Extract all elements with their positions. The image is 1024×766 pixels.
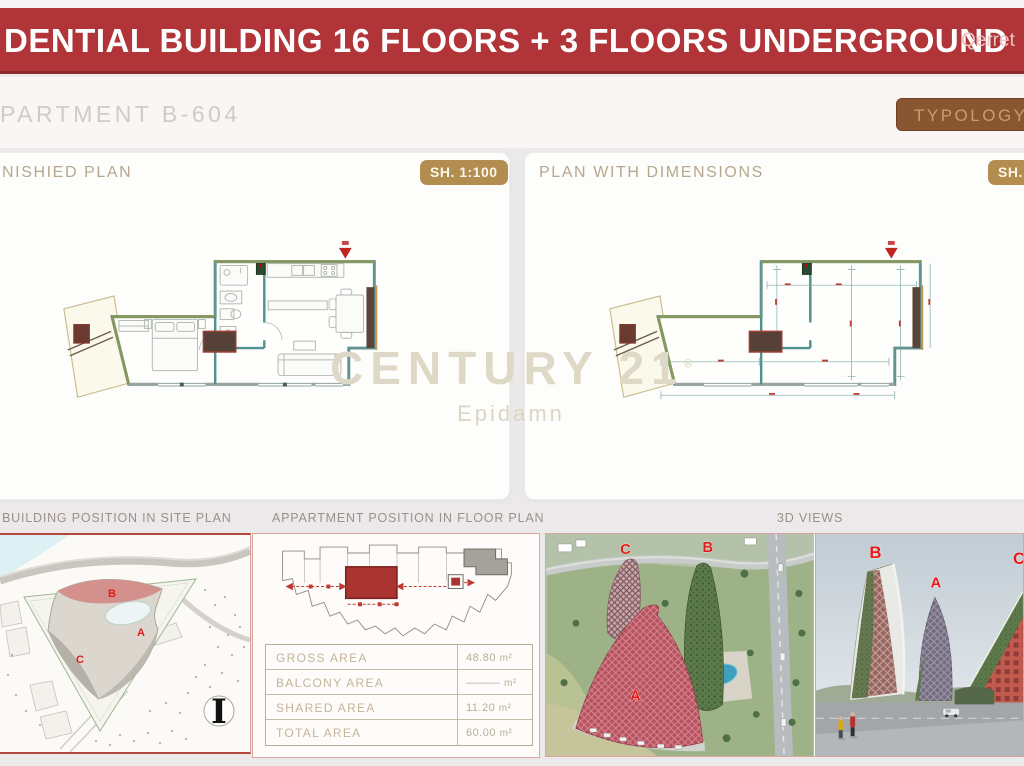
street-label-a: A xyxy=(930,576,941,592)
street-label-b: B xyxy=(869,543,881,562)
scale-badge-dimensioned: SH. xyxy=(988,160,1024,185)
aerial-label-c: C xyxy=(620,542,631,558)
area-row-value: ——— m² xyxy=(458,670,532,694)
table-row: SHARED AREA 11.20 m² xyxy=(266,695,532,720)
aerial-label-b: B xyxy=(702,540,713,556)
presentation-slide: DENTIAL BUILDING 16 FLOORS + 3 FLOORS UN… xyxy=(0,0,1024,766)
typology-badge: TYPOLOGY 1 xyxy=(896,98,1024,131)
site-plan-section-title: BUILDING POSITION IN SITE PLAN xyxy=(2,511,232,525)
area-row-label: SHARED AREA xyxy=(266,695,458,719)
site-label-b: B xyxy=(108,588,116,600)
site-label-a: A xyxy=(137,627,145,639)
site-plan-drawing: B A C I xyxy=(0,535,250,752)
svg-text:I: I xyxy=(211,692,227,732)
table-row: GROSS AREA 48.80 m² xyxy=(266,645,532,670)
dimensioned-plan-title: PLAN WITH DIMENSIONS xyxy=(539,164,764,182)
top-margin-strip xyxy=(0,0,1024,8)
floor-position-section-title: APPARTMENT POSITION IN FLOOR PLAN xyxy=(272,511,544,525)
street-view-panel: B A C xyxy=(815,533,1024,757)
site-label-c: C xyxy=(76,654,84,666)
street-trees xyxy=(955,687,995,705)
furnished-plan-title: NISHIED PLAN xyxy=(2,164,132,182)
area-row-label: TOTAL AREA xyxy=(266,720,458,745)
floor-position-panel: GROSS AREA 48.80 m² BALCONY AREA ——— m² … xyxy=(252,533,540,758)
apartment-highlight xyxy=(346,567,397,599)
views-section-title: 3D VIEWS xyxy=(777,511,843,525)
street-render: B A C xyxy=(816,534,1023,756)
apartment-title: PARTMENT B-604 xyxy=(0,101,241,128)
area-row-label: GROSS AREA xyxy=(266,645,458,669)
area-row-value: 48.80 m² xyxy=(458,645,532,669)
table-row: TOTAL AREA 60.00 m² xyxy=(266,720,532,745)
aerial-view-panel: C B A xyxy=(545,533,815,757)
header-banner: DENTIAL BUILDING 16 FLOORS + 3 FLOORS UN… xyxy=(0,8,1024,74)
dimensioned-floor-plan-drawing xyxy=(604,240,938,407)
apartment-title-band: PARTMENT B-604 TYPOLOGY 1 xyxy=(0,77,1024,148)
furnished-floor-plan-drawing xyxy=(58,240,392,407)
area-row-value: 11.20 m² xyxy=(458,695,532,719)
area-table: GROSS AREA 48.80 m² BALCONY AREA ——— m² … xyxy=(265,644,533,746)
building-title: DENTIAL BUILDING 16 FLOORS + 3 FLOORS UN… xyxy=(4,22,1008,60)
area-row-label: BALCONY AREA xyxy=(266,670,458,694)
floor-position-drawing xyxy=(253,536,539,642)
site-plan-panel: B A C I xyxy=(0,533,251,754)
scale-badge-furnished: SH. 1:100 xyxy=(420,160,508,185)
entrance-door-icon xyxy=(339,248,352,259)
aerial-label-a: A xyxy=(630,689,641,705)
table-row: BALCONY AREA ——— m² xyxy=(266,670,532,695)
area-row-value: 60.00 m² xyxy=(458,720,532,745)
aerial-render: C B A xyxy=(546,534,814,756)
location-label: Qerret xyxy=(961,30,1015,52)
entrance-door-icon xyxy=(885,248,898,259)
street-label-c: C xyxy=(1013,549,1023,568)
